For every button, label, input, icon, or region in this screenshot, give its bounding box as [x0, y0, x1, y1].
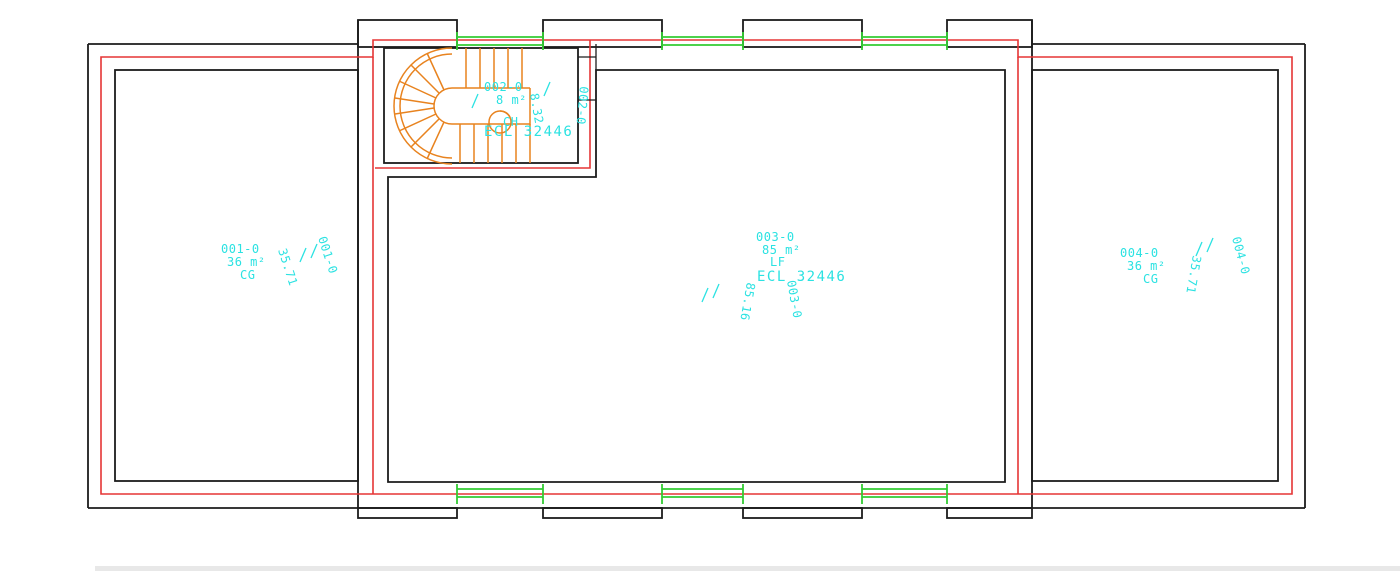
room-003-walls	[388, 70, 1005, 482]
tick-mark	[311, 244, 317, 258]
room-id-rotated: 001-0	[315, 235, 340, 276]
room-type: LF	[770, 255, 785, 269]
bottom-piers	[358, 508, 1032, 518]
room-id: 002-0	[484, 80, 523, 94]
cad-viewport[interactable]: 001-0 36 m² CG 35.71 001-0 002-0 8 m² CH…	[0, 0, 1400, 571]
room-id: 004-0	[1120, 246, 1159, 260]
pier	[743, 20, 862, 47]
room-area-exact: 35.71	[275, 247, 300, 288]
room-area: 36 m²	[1127, 259, 1166, 273]
room-area-exact: 85.16	[737, 281, 757, 321]
wall-line	[88, 20, 1305, 508]
room-003-label: 003-0 85 m² LF ECL 32446 85.16 003-0	[702, 230, 846, 322]
pier	[543, 508, 662, 518]
pier	[743, 508, 862, 518]
insulation-perimeter	[101, 40, 1292, 494]
room-ref: ECL 32446	[484, 124, 573, 140]
tick-mark	[713, 284, 719, 298]
tick-mark	[1196, 242, 1202, 256]
tick-mark	[472, 94, 478, 108]
insulation-lines	[101, 40, 1292, 494]
window	[662, 32, 743, 50]
horizontal-scrollbar[interactable]	[95, 566, 1400, 571]
stair-outer-arc	[394, 48, 452, 164]
tick-mark	[702, 288, 708, 302]
room-id-rotated: 004-0	[1229, 235, 1253, 276]
pier	[947, 508, 1032, 518]
room-002-label: 002-0 8 m² CH ECL 32446 8.32 002-0	[472, 80, 591, 140]
stair-inner-arc	[400, 54, 452, 158]
pier	[543, 20, 662, 47]
room-id: 003-0	[756, 230, 795, 244]
pier	[358, 508, 457, 518]
floor-plan-canvas[interactable]: 001-0 36 m² CG 35.71 001-0 002-0 8 m² CH…	[0, 0, 1400, 571]
tick-mark	[300, 248, 306, 262]
room-type: CG	[1143, 272, 1158, 286]
room-001-walls	[115, 70, 358, 481]
room-ref: ECL 32446	[757, 269, 846, 285]
room-001-label: 001-0 36 m² CG 35.71 001-0	[221, 235, 340, 288]
window	[862, 32, 947, 50]
insulation-stairwell	[375, 40, 590, 168]
top-piers	[358, 20, 1032, 47]
room-type: CG	[240, 268, 255, 282]
outer-walls	[88, 20, 1305, 518]
stair-winder-treads	[395, 53, 444, 159]
room-004-label: 004-0 36 m² CG 35.71 004-0	[1120, 235, 1253, 295]
room-id-rotated: 002-0	[574, 86, 591, 126]
room-area: 36 m²	[227, 255, 266, 269]
room-area: 8 m²	[496, 93, 527, 107]
room-labels: 001-0 36 m² CG 35.71 001-0 002-0 8 m² CH…	[221, 80, 1253, 322]
tick-mark	[1207, 238, 1213, 252]
room-id: 001-0	[221, 242, 260, 256]
room-id-rotated: 003-0	[784, 279, 804, 319]
pier	[947, 20, 1032, 47]
room-area-exact: 35.71	[1183, 254, 1203, 294]
tick-mark	[544, 82, 550, 96]
